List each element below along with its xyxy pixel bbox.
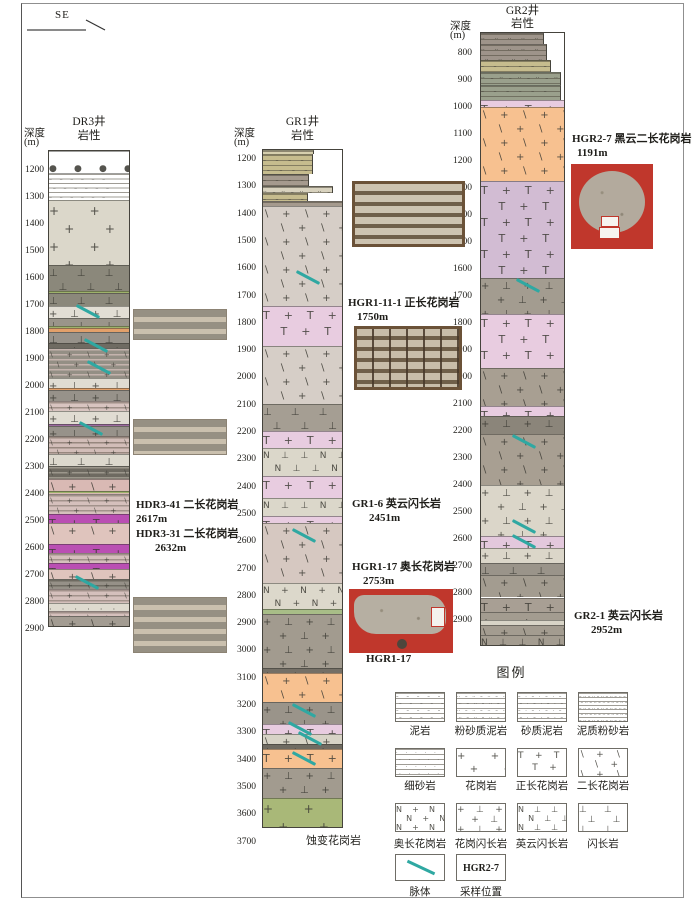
legend-swatch-seddash: – – – – – – – – – – – – – – – – – – – – … <box>395 692 445 722</box>
sample-id-label: HGR2-7 黑云二长花岗岩 <box>572 133 691 145</box>
layer-banded: ∖ + ∖ + ∖ + ∖ + ∖ + ∖ + <box>49 401 130 411</box>
layer-seddotdash: ·· – ·· – ·· – ·· – ·· – ·· – <box>263 186 333 193</box>
lithology-header: 岩性 <box>48 127 130 143</box>
core-photo-dr3-middle <box>133 419 227 455</box>
legend-swatch-tplus: T + T + T + T + T + T + T + T + T + T + … <box>517 748 567 777</box>
depth-tick-1800: 1800 <box>226 318 256 328</box>
depth-tick-1400: 1400 <box>226 209 256 219</box>
layer-perp: ⊥ ⊥ ⊥ ⊥ ⊥ ⊥ ⊥ ⊥ ⊥ ⊥ ⊥ ⊥ <box>263 404 343 431</box>
lithology-header: 岩性 <box>480 15 565 31</box>
legend-swatch-nplus: N + N + N + N + N + N + N + N + N + N + … <box>395 803 445 832</box>
depth-tick-3600: 3600 <box>226 809 256 819</box>
depth-tick-2200: 2200 <box>14 435 44 445</box>
layer-seddash: – – – – – – <box>481 85 561 100</box>
depth-tick-800: 800 <box>442 48 472 58</box>
layer-banded: ∖ + ∖ + ∖ + ∖ + ∖ + ∖ + ∖ + ∖ + ∖ + ∖ + … <box>49 436 130 454</box>
depth-tick-3000: 3000 <box>226 645 256 655</box>
rock-sample-photo-hgr1-17 <box>349 589 453 653</box>
depth-tick-1500: 1500 <box>14 246 44 256</box>
depth-tick-2700: 2700 <box>226 564 256 574</box>
layer-perp: ⊥ ⊥ ⊥ ⊥ ⊥ ⊥ <box>49 318 130 326</box>
layer-sedwhite: – – – – – – – – – – – – – – – – – – <box>49 173 130 200</box>
layer-plusperp: + ⊥ + ⊥ + ⊥ + ⊥ + ⊥ + ⊥ <box>49 390 130 401</box>
lithology-header: 岩性 <box>262 127 343 143</box>
layer-nplus: N + N + N + N + N + N + N + N + N + N + … <box>263 583 343 609</box>
depth-tick-1700: 1700 <box>226 291 256 301</box>
legend-swatch-seddashdot: – · – · – · – · – · – · – · – · – · – · … <box>517 692 567 722</box>
depth-tick-1200: 1200 <box>226 154 256 164</box>
depth-tick-1300: 1300 <box>226 181 256 191</box>
legend-swatch-sedfine: – ·· – ·· – ·· – ·· – ·· – ·· – ·· – ·· … <box>578 692 628 722</box>
lithology-column-DR3井: ● ● ● ● ● ● – – – – – – – – – – – – – – … <box>48 150 130 627</box>
layer-seddots: ·· ·· ·· ·· ·· ·· <box>481 33 544 44</box>
sample-id-label: HDR3-41 二长花岗岩 <box>136 499 238 511</box>
sample-tag <box>599 227 620 239</box>
depth-tick-1700: 1700 <box>14 300 44 310</box>
depth-tick-3200: 3200 <box>226 700 256 710</box>
depth-tick-2400: 2400 <box>442 480 472 490</box>
depth-tick-2600: 2600 <box>442 534 472 544</box>
layer-slashplus: ∖ + ∖ + ∖ + ∖ + ∖ + ∖ + <box>49 523 130 544</box>
depth-tick-2800: 2800 <box>226 591 256 601</box>
layer-perp: ⊥ ⊥ ⊥ ⊥ ⊥ ⊥ <box>49 293 130 306</box>
layer-tplus: T + T + T + T + T + T + <box>263 476 343 498</box>
layer-perp: ⊥ ⊥ ⊥ ⊥ ⊥ ⊥ <box>481 563 565 575</box>
core-photo-dr3-upper <box>133 309 227 340</box>
sample-depth-label: 2632m <box>136 541 238 555</box>
legend-swatch-seddot: · · · · · · · · · · · · · · · · · · · · … <box>395 748 445 777</box>
sample-tag <box>601 216 619 227</box>
layer-plusperp: + ⊥ + ⊥ + ⊥ + ⊥ + ⊥ + ⊥ + ⊥ + ⊥ + ⊥ + ⊥ … <box>263 702 343 724</box>
core-photo-dr3-lower <box>133 597 227 653</box>
depth-tick-2000: 2000 <box>226 372 256 382</box>
annotation-hdr3-31: HDR3-31 二长花岗岩 2632m <box>136 527 238 555</box>
depth-tick-3100: 3100 <box>226 673 256 683</box>
depth-tick-2900: 2900 <box>14 624 44 634</box>
depth-tick-2400: 2400 <box>226 482 256 492</box>
sample-id-label: HDR3-31 二长花岗岩 <box>136 528 238 540</box>
layer-slashplus: ∖ + ∖ + ∖ + ∖ + ∖ + ∖ + ∖ + ∖ + ∖ + ∖ + … <box>263 523 343 583</box>
legend-swatch-plus: + + + + + + + + + + + + <box>456 748 506 777</box>
section-direction-arrow <box>27 8 117 34</box>
layer-slashplus: ∖ + ∖ + ∖ + ∖ + ∖ + ∖ + ∖ + ∖ + ∖ + ∖ + … <box>263 673 343 702</box>
layer-slashplus: ∖ + ∖ + ∖ + ∖ + ∖ + ∖ + <box>49 569 130 579</box>
legend-label: 采样位置 <box>444 884 518 899</box>
layer-seddash: – – – – – – <box>263 174 309 186</box>
depth-tick-2600: 2600 <box>14 543 44 553</box>
layer-tplus: T + T + T + T + T + T + T + T + T + T + … <box>263 306 343 346</box>
depth-tick-2000: 2000 <box>14 381 44 391</box>
sample-depth-label: 2753m <box>352 574 455 588</box>
layer-banded: ∖ + ∖ + ∖ + ∖ + ∖ + ∖ + <box>49 466 130 479</box>
section-direction: SE <box>27 8 117 34</box>
sample-depth-label: 1750m <box>348 310 460 324</box>
depth-tick-2300: 2300 <box>226 454 256 464</box>
depth-tick-2500: 2500 <box>442 507 472 517</box>
legend-swatch-vein <box>395 854 445 881</box>
depth-tick-3700: 3700 <box>226 837 256 847</box>
layer-seddotdash: ·· – ·· – ·· – ·· – ·· – ·· – <box>481 72 561 86</box>
annotation-hgr1-11-1: HGR1-11-1 正长花岗岩 1750m <box>348 296 460 324</box>
depth-tick-1600: 1600 <box>226 263 256 273</box>
layer-tplus: T + T + T + T + T + T + <box>481 598 565 613</box>
legend-title: 图例 <box>395 662 628 681</box>
depth-tick-1800: 1800 <box>14 327 44 337</box>
depth-tick-2400: 2400 <box>14 489 44 499</box>
legend-swatch-nperp: N ⊥ ⊥ N ⊥ ⊥ N ⊥ ⊥ N ⊥ ⊥ N ⊥ ⊥ N ⊥ ⊥ N ⊥ … <box>517 803 567 832</box>
layer-slashplus: ∖ + ∖ + ∖ + ∖ + ∖ + ∖ + ∖ + ∖ + ∖ + ∖ + … <box>481 107 565 181</box>
depth-tick-2100: 2100 <box>14 408 44 418</box>
annotation-gr2-1: GR2-1 英云闪长岩 2952m <box>574 609 663 637</box>
lithology-column-GR2井: ·· ·· ·· ·· ·· ·· ·· ·· ·· ·· ·· ·· ·· ·… <box>480 32 565 647</box>
depth-tick-3500: 3500 <box>226 782 256 792</box>
depth-tick-1600: 1600 <box>14 273 44 283</box>
depth-tick-3400: 3400 <box>226 755 256 765</box>
layer-tplus: T + T + T + T + T + T + <box>263 516 343 523</box>
layer-plusperp: + ⊥ + ⊥ + ⊥ + ⊥ + ⊥ + ⊥ + ⊥ + ⊥ + ⊥ + ⊥ … <box>263 614 343 668</box>
depth-tick-1200: 1200 <box>14 165 44 175</box>
layer-plusperp: + ⊥ + ⊥ + ⊥ + ⊥ + ⊥ + ⊥ <box>49 411 130 424</box>
layer-dotgrid: · · · · · · <box>49 603 130 611</box>
core-box-photo-gr1-upper <box>352 181 465 247</box>
depth-tick-1900: 1900 <box>226 345 256 355</box>
legend-swatch-sample-location: HGR2-7 <box>456 854 506 881</box>
layer-tplus: T + T + T + T + T + T + <box>481 406 565 416</box>
layer-plusperp: + ⊥ + ⊥ + ⊥ + ⊥ + ⊥ + ⊥ <box>481 416 565 434</box>
depth-unit: (m) <box>450 30 465 41</box>
layer-plusperp: + ⊥ + ⊥ + ⊥ + ⊥ + ⊥ + ⊥ <box>481 548 565 564</box>
annotation-hgr1-17: HGR1-17 奥长花岗岩 2753m <box>352 560 455 588</box>
depth-tick-2200: 2200 <box>442 426 472 436</box>
depth-tick-2200: 2200 <box>226 427 256 437</box>
layer-plus: + + + + + + <box>481 612 565 620</box>
layer-slashplus: ∖ + ∖ + ∖ + ∖ + ∖ + ∖ + ∖ + ∖ + ∖ + ∖ + … <box>263 346 343 404</box>
depth-tick-900: 900 <box>442 75 472 85</box>
layer-slashplus: ∖ + ∖ + ∖ + ∖ + ∖ + ∖ + <box>481 625 565 635</box>
layer-nperp: N ⊥ ⊥ N ⊥ ⊥ N ⊥ ⊥ N ⊥ ⊥ N ⊥ ⊥ N ⊥ ⊥ N ⊥ … <box>263 448 343 476</box>
layer-perp: ⊥ ⊥ ⊥ ⊥ ⊥ ⊥ <box>49 454 130 466</box>
depth-tick-2500: 2500 <box>14 516 44 526</box>
layer-tplus: T + T + T + T + T + T + T + T + T + T + … <box>481 181 565 278</box>
altered-granite-label: 蚀变花岗岩 <box>306 832 361 848</box>
section-direction-label: SE <box>55 9 70 21</box>
layer-slashplus: ∖ + ∖ + ∖ + ∖ + ∖ + ∖ + ∖ + ∖ + ∖ + ∖ + … <box>263 206 343 306</box>
sample-depth-label: 2952m <box>574 623 663 637</box>
layer-plusperp: + ⊥ + ⊥ + ⊥ + ⊥ + ⊥ + ⊥ + ⊥ + ⊥ + ⊥ + ⊥ … <box>263 768 343 798</box>
sample-id-label: HGR1-11-1 正长花岗岩 <box>348 297 460 309</box>
legend-label: 二长花岗岩 <box>566 778 640 793</box>
layer-tplus: T + T + T + T + T + T + <box>481 100 565 107</box>
annotation-hdr3-41: HDR3-41 二长花岗岩 2617m <box>136 498 238 526</box>
layer-banded: ∖ + ∖ + ∖ + ∖ + ∖ + ∖ + <box>49 589 130 603</box>
depth-tick-2100: 2100 <box>226 400 256 410</box>
layer-perp: ⊥ ⊥ ⊥ ⊥ ⊥ ⊥ ⊥ ⊥ ⊥ ⊥ ⊥ ⊥ <box>49 265 130 291</box>
depth-unit: (m) <box>24 137 39 148</box>
layer-slashplus: ∖ + ∖ + ∖ + ∖ + ∖ + ∖ + ∖ + ∖ + ∖ + ∖ + … <box>481 575 565 597</box>
legend-label: 泥质粉砂岩 <box>566 723 640 738</box>
depth-tick-1000: 1000 <box>442 102 472 112</box>
sample-depth-label: 1191m <box>572 146 691 160</box>
depth-tick-2100: 2100 <box>442 399 472 409</box>
annotation-gr1-6: GR1-6 英云闪长岩 2451m <box>352 497 441 525</box>
layer-slashplus: ∖ + ∖ + ∖ + ∖ + ∖ + ∖ + <box>49 616 130 627</box>
layer-seddash: – – – – – – <box>263 193 308 201</box>
scale-marker <box>397 639 407 649</box>
layer-line <box>49 491 130 493</box>
lithology-column-GR1井: – – – – – – – – – – – – – – – – – – – – … <box>262 149 343 828</box>
layer-banded: ∖ + ∖ + ∖ + ∖ + ∖ + ∖ + ∖ + ∖ + ∖ + ∖ + … <box>49 494 130 514</box>
depth-unit: (m) <box>234 137 249 148</box>
annotation-hgr2-7: HGR2-7 黑云二长花岗岩 1191m <box>572 132 691 160</box>
layer-plusperp: + ⊥ + ⊥ + ⊥ + ⊥ + ⊥ + ⊥ <box>49 378 130 388</box>
depth-tick-1900: 1900 <box>14 354 44 364</box>
sample-id-label: GR1-6 英云闪长岩 <box>352 498 441 510</box>
depth-tick-1600: 1600 <box>442 264 472 274</box>
legend-swatch-perp: ⊥ ⊥ ⊥ ⊥ ⊥ ⊥ ⊥ ⊥ ⊥ ⊥ ⊥ ⊥ ⊥ ⊥ ⊥ ⊥ ⊥ ⊥ <box>578 803 628 832</box>
depth-tick-1300: 1300 <box>14 192 44 202</box>
depth-tick-2300: 2300 <box>14 462 44 472</box>
depth-tick-2900: 2900 <box>226 618 256 628</box>
layer-tplus: T + T + T + T + T + T + T + T + T + T + … <box>481 314 565 368</box>
layer-seddash: – – – – – – <box>481 60 551 72</box>
layer-banded: ∖ + ∖ + ∖ + ∖ + ∖ + ∖ + <box>49 553 130 563</box>
layer-nperp: N ⊥ ⊥ N ⊥ ⊥ N ⊥ ⊥ N ⊥ ⊥ N ⊥ ⊥ N ⊥ ⊥ <box>263 498 343 516</box>
sample-depth-label: 2617m <box>136 512 238 526</box>
layer-seddots: ·· ·· ·· ·· ·· ·· ·· ·· ·· ·· ·· ·· <box>481 44 547 60</box>
layer-tplus: T + T + T + T + T + T + <box>263 431 343 448</box>
core-box-photo-gr1-lower <box>354 326 462 390</box>
layer-seddash: – – – – – – – – – – – – <box>263 154 313 174</box>
layer-plusperp: + ⊥ + ⊥ + ⊥ + ⊥ + ⊥ + ⊥ + ⊥ + ⊥ + ⊥ + ⊥ … <box>481 485 565 536</box>
layer-tplus: T + T + T + T + T + T + <box>49 544 130 553</box>
sample-id-label: HGR1-17 奥长花岗岩 <box>352 561 455 573</box>
layer-dots: ● ● ● ● ● ● <box>49 151 130 173</box>
geologic-well-correlation-figure: SE DR3井岩性深度(m)12001300140015001600170018… <box>0 0 700 901</box>
depth-tick-1100: 1100 <box>442 129 472 139</box>
legend-swatch-slashplus: ∖ + ∖ + ∖ + ∖ + ∖ + ∖ + ∖ + ∖ + ∖ + ∖ + … <box>578 748 628 777</box>
depth-tick-3300: 3300 <box>226 727 256 737</box>
sample-id-label: GR2-1 英云闪长岩 <box>574 610 663 622</box>
rock-sample-photo-hgr2-7 <box>571 164 653 249</box>
legend-swatch-plusperp: + ⊥ + ⊥ + ⊥ + ⊥ + ⊥ + ⊥ + ⊥ + ⊥ + ⊥ + ⊥ … <box>456 803 506 832</box>
depth-tick-1500: 1500 <box>226 236 256 246</box>
legend-label: 闪长岩 <box>566 836 640 851</box>
layer-nperp: N ⊥ ⊥ N ⊥ ⊥ N ⊥ ⊥ N ⊥ ⊥ N ⊥ ⊥ N ⊥ ⊥ <box>481 635 565 646</box>
layer-plus: + + + + + + + + + + + + <box>263 798 343 828</box>
layer-plus: + + + + + + + + + + + + + + + + + + + + … <box>49 200 130 265</box>
depth-tick-1200: 1200 <box>442 156 472 166</box>
legend-swatch-seddotdash: ·· – ·· – ·· – ·· – ·· – ·· – ·· – ·· – … <box>456 692 506 722</box>
layer-slashplus: ∖ + ∖ + ∖ + ∖ + ∖ + ∖ + ∖ + ∖ + ∖ + ∖ + … <box>481 368 565 406</box>
depth-tick-2800: 2800 <box>14 597 44 607</box>
layer-tplus: T + T + T + T + T + T + <box>49 514 130 523</box>
depth-tick-1400: 1400 <box>14 219 44 229</box>
vein-line <box>407 860 435 875</box>
sample-depth-label: 2451m <box>352 511 441 525</box>
depth-tick-2700: 2700 <box>14 570 44 580</box>
depth-tick-2300: 2300 <box>442 453 472 463</box>
sample-tag <box>431 607 445 627</box>
